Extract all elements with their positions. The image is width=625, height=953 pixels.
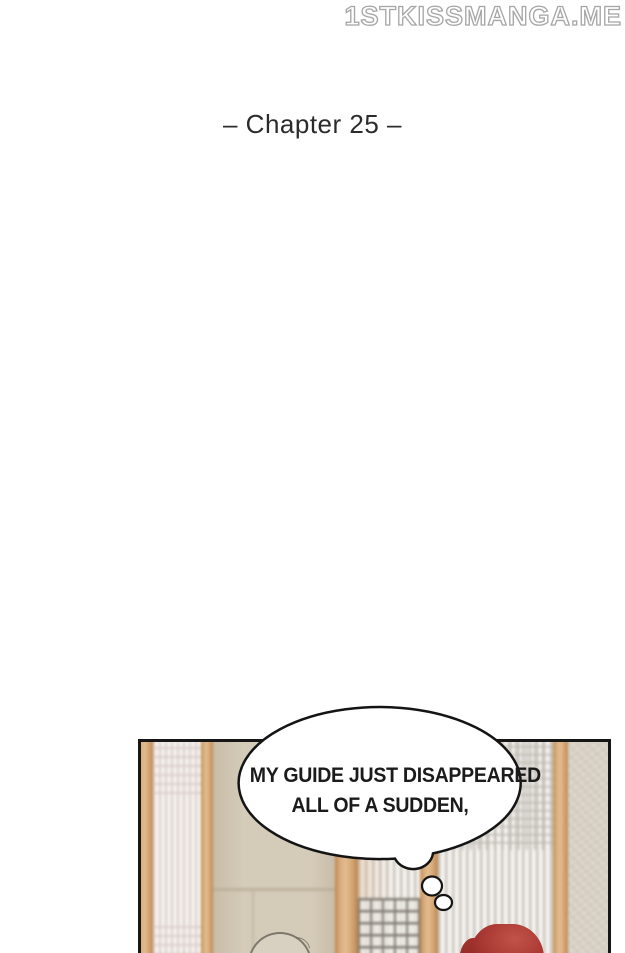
shoji-lattice-top — [153, 739, 201, 799]
bubble-line-2: ALL OF A SUDDEN, — [250, 791, 510, 821]
wood-post-3 — [553, 739, 568, 953]
wood-frame-strip-left — [138, 739, 153, 953]
thought-dot-large — [422, 877, 442, 896]
site-watermark: 1STKISSMANGA.ME — [344, 0, 622, 32]
thought-bubble-text: MY GUIDE JUST DISAPPEARED ALL OF A SUDDE… — [250, 761, 510, 821]
bubble-line-1: MY GUIDE JUST DISAPPEARED — [250, 761, 510, 791]
thought-dot-small — [435, 895, 452, 910]
wood-frame-strip-mid — [201, 739, 213, 953]
manga-reader-page: 1STKISSMANGA.ME – Chapter 25 – — [0, 0, 625, 953]
shoji-lattice-bottom — [153, 926, 201, 953]
plaster-wall-right — [568, 739, 611, 953]
chapter-title: – Chapter 25 – — [0, 107, 625, 141]
shoji-screen-left — [153, 739, 201, 953]
